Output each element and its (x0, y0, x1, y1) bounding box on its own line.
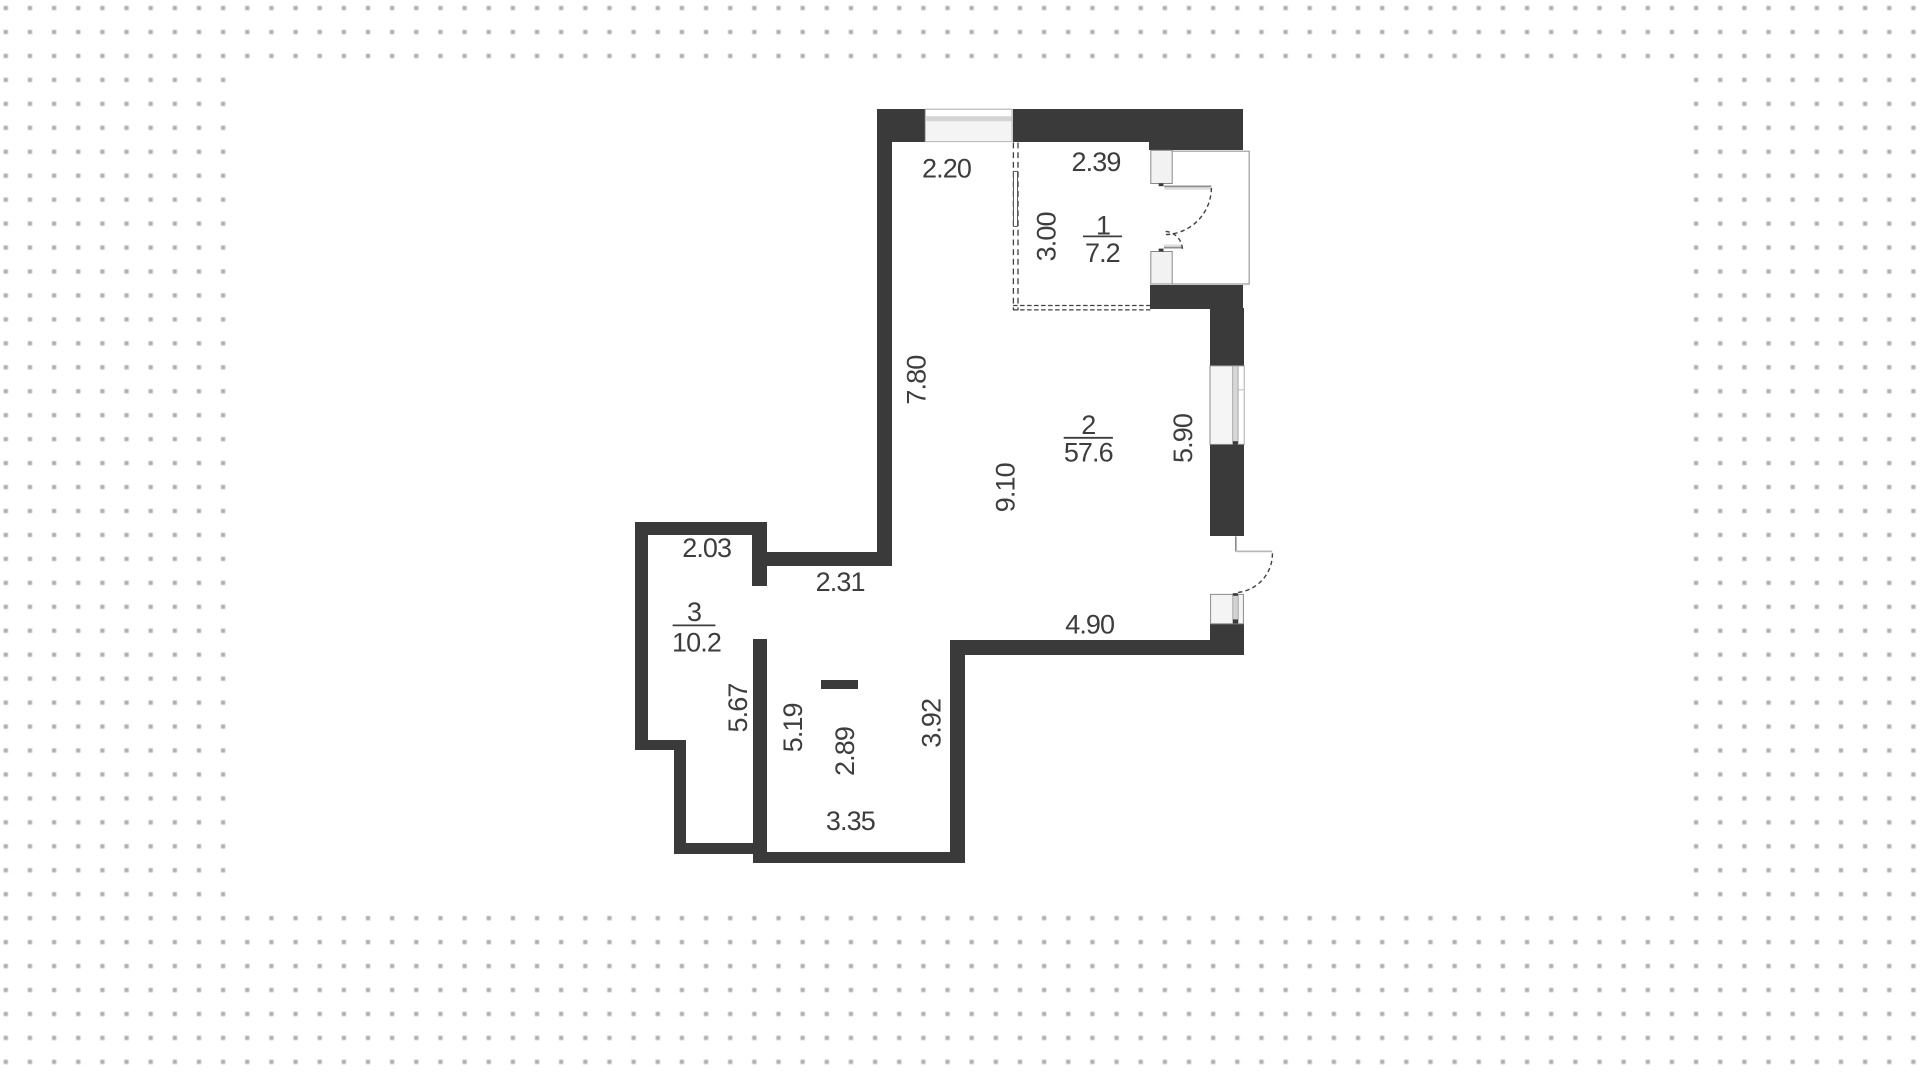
svg-text:2.03: 2.03 (682, 533, 731, 563)
svg-text:5.67: 5.67 (723, 684, 753, 733)
svg-text:3.92: 3.92 (917, 699, 947, 748)
svg-text:57.6: 57.6 (1064, 438, 1113, 468)
svg-text:7.2: 7.2 (1085, 238, 1120, 268)
svg-text:7.80: 7.80 (901, 356, 931, 405)
svg-text:5.19: 5.19 (778, 703, 808, 752)
svg-text:2.39: 2.39 (1072, 147, 1121, 177)
svg-text:5.90: 5.90 (1168, 414, 1198, 463)
svg-text:2.20: 2.20 (922, 154, 971, 184)
svg-text:2.89: 2.89 (830, 727, 860, 776)
svg-text:10.2: 10.2 (672, 628, 721, 658)
svg-text:3.00: 3.00 (1032, 212, 1062, 261)
svg-text:3: 3 (687, 597, 701, 627)
svg-text:2: 2 (1081, 410, 1095, 440)
svg-text:4.90: 4.90 (1065, 610, 1114, 640)
svg-text:2.31: 2.31 (816, 567, 865, 597)
svg-text:9.10: 9.10 (990, 463, 1020, 512)
svg-text:3.35: 3.35 (826, 806, 875, 836)
